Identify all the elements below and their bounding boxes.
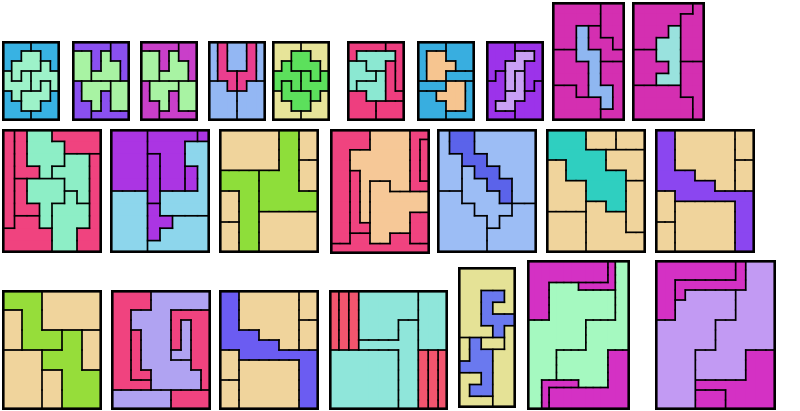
- puzzle-r2-5-svg: [437, 129, 537, 253]
- puzzle-r3-1-svg: [2, 290, 102, 410]
- polyomino-tiling-board: [0, 0, 800, 411]
- puzzle-r2-1: [2, 129, 102, 253]
- puzzle-r3-6-svg: [527, 260, 630, 410]
- puzzle-r1-6-svg: [347, 41, 405, 121]
- puzzle-r3-4-svg: [329, 290, 448, 410]
- puzzle-r1-9: [552, 2, 625, 121]
- puzzle-r3-2-svg: [111, 290, 211, 410]
- puzzle-r2-6-svg: [546, 129, 646, 253]
- puzzle-r1-6: [347, 41, 405, 121]
- puzzle-r2-5: [437, 129, 537, 253]
- puzzle-r3-5-svg: [458, 267, 516, 408]
- puzzle-r1-5-svg: [272, 41, 330, 121]
- puzzle-r2-4-svg: [330, 129, 430, 254]
- puzzle-r1-8: [486, 41, 544, 121]
- puzzle-r1-1: [2, 41, 60, 121]
- puzzle-r1-7-svg: [417, 41, 475, 121]
- puzzle-r1-4: [208, 41, 266, 121]
- puzzle-r2-2: [110, 129, 210, 253]
- puzzle-r2-7: [655, 129, 755, 253]
- puzzle-r1-2-svg: [72, 41, 130, 121]
- puzzle-r1-7: [417, 41, 475, 121]
- puzzle-r3-1: [2, 290, 102, 410]
- puzzle-r1-1-svg: [2, 41, 60, 121]
- puzzle-r3-7: [655, 260, 776, 410]
- puzzle-r1-3: [140, 41, 198, 121]
- puzzle-r2-6: [546, 129, 646, 253]
- puzzle-r3-3-svg: [219, 290, 319, 410]
- puzzle-r1-3-svg: [140, 41, 198, 121]
- puzzle-r1-4-svg: [208, 41, 266, 121]
- puzzle-r3-6: [527, 260, 630, 410]
- puzzle-r2-1-svg: [2, 129, 102, 253]
- puzzle-r1-9-svg: [552, 2, 625, 121]
- puzzle-r3-7-svg: [655, 260, 776, 410]
- puzzle-r3-3: [219, 290, 319, 410]
- puzzle-r3-2: [111, 290, 211, 410]
- puzzle-r1-8-svg: [486, 41, 544, 121]
- puzzle-r2-3: [219, 129, 319, 253]
- puzzle-r3-5: [458, 267, 516, 408]
- puzzle-r1-2: [72, 41, 130, 121]
- puzzle-r2-3-svg: [219, 129, 319, 253]
- puzzle-r1-10-svg: [632, 2, 705, 121]
- puzzle-r3-4: [329, 290, 448, 410]
- puzzle-r2-7-svg: [655, 129, 755, 253]
- puzzle-r1-10: [632, 2, 705, 121]
- puzzle-r1-5: [272, 41, 330, 121]
- puzzle-r2-4: [330, 129, 430, 254]
- puzzle-r2-2-svg: [110, 129, 210, 253]
